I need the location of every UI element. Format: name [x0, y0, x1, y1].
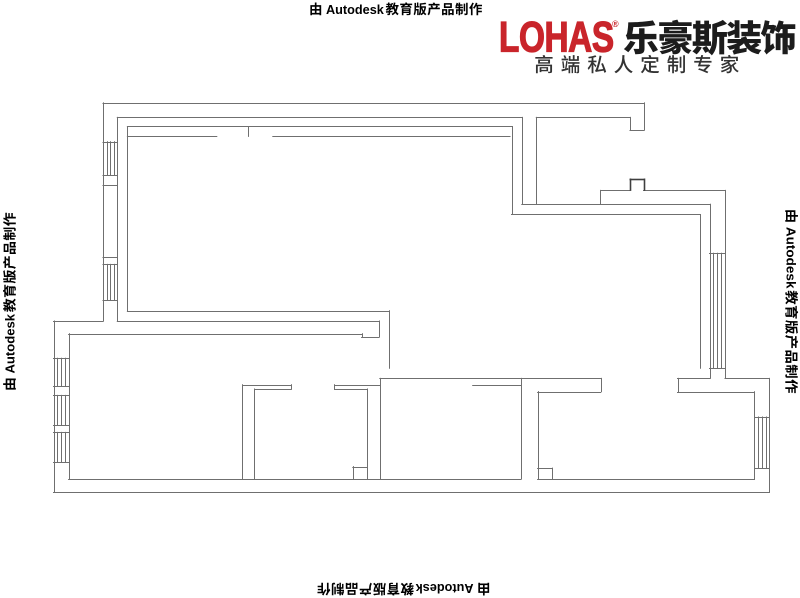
svg-text:Autodesk: Autodesk — [326, 3, 385, 17]
svg-text:Autodesk: Autodesk — [784, 227, 799, 289]
svg-text:LOHAS: LOHAS — [499, 13, 614, 61]
svg-text:Autodesk: Autodesk — [415, 581, 474, 595]
svg-text:Autodesk: Autodesk — [3, 313, 18, 373]
svg-text:®: ® — [612, 19, 619, 29]
